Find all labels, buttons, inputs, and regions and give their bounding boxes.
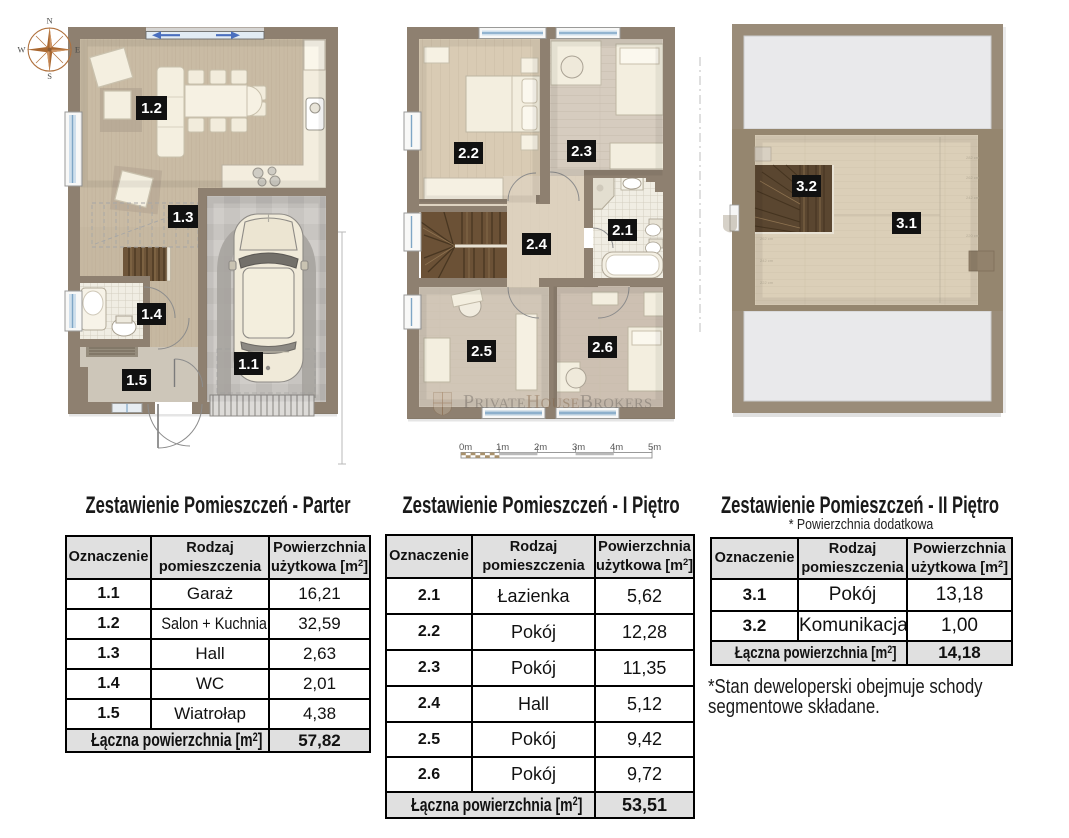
svg-text:1.4: 1.4 (141, 306, 163, 323)
svg-text:1.1: 1.1 (238, 356, 259, 373)
svg-text:5m: 5m (648, 442, 661, 453)
svg-text:1.3: 1.3 (173, 209, 194, 226)
svg-text:2.1: 2.1 (612, 222, 633, 239)
svg-text:2.2: 2.2 (458, 145, 479, 162)
svg-text:2.4: 2.4 (526, 236, 548, 253)
svg-text:W: W (17, 45, 25, 55)
svg-text:1m: 1m (496, 442, 509, 453)
svg-text:3m: 3m (572, 442, 585, 453)
svg-text:E: E (75, 45, 80, 55)
svg-text:0m: 0m (459, 442, 472, 453)
svg-text:3.2: 3.2 (796, 178, 817, 195)
svg-text:2.6: 2.6 (592, 339, 613, 356)
svg-text:N: N (47, 16, 53, 26)
svg-text:2.5: 2.5 (471, 343, 492, 360)
svg-text:2m: 2m (534, 442, 547, 453)
svg-text:1.5: 1.5 (126, 372, 147, 389)
svg-text:3.1: 3.1 (896, 215, 917, 232)
svg-text:4m: 4m (610, 442, 623, 453)
svg-text:2.3: 2.3 (571, 143, 592, 160)
svg-text:S: S (47, 71, 52, 81)
svg-text:1.2: 1.2 (141, 100, 162, 117)
